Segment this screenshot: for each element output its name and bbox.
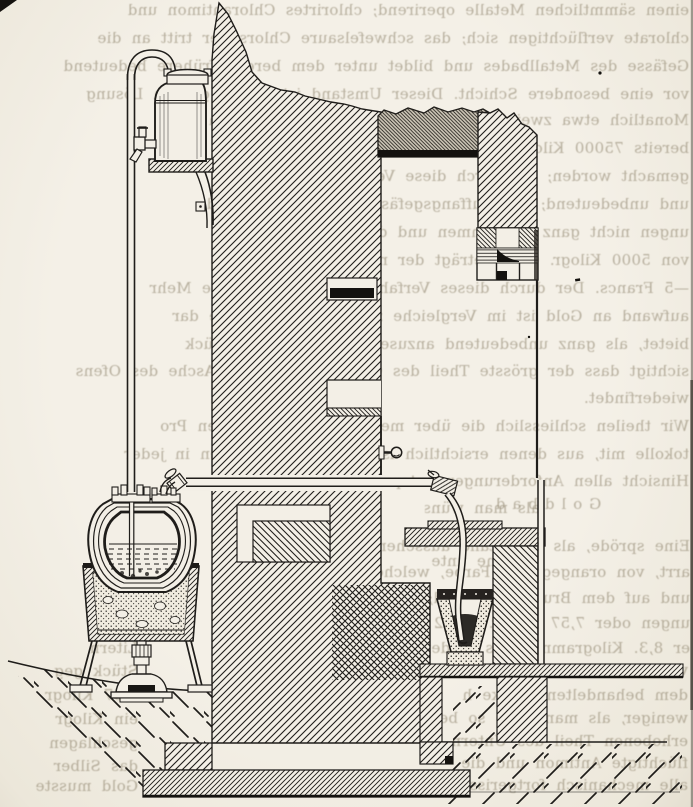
cup-pedestal [447, 652, 483, 665]
tower-right-jamb [478, 109, 537, 228]
lintel-block [378, 107, 490, 157]
chamber-cover-slab [405, 528, 545, 546]
chamber-right-wall [493, 546, 538, 664]
bottle-lid [164, 69, 211, 84]
checkered-flue-block [477, 228, 538, 280]
scanned-book-page: einen sämmtlichen Metalle operirend; chl… [0, 0, 693, 807]
furnace-tower [212, 3, 538, 743]
condenser-cup [437, 589, 493, 665]
retort-crucible [88, 478, 196, 592]
firebox-mass [332, 585, 430, 680]
wall-shelf-bracket [149, 159, 213, 228]
flue-niche [327, 278, 377, 300]
base-ledge-slab [420, 664, 683, 677]
supply-bottle [130, 69, 211, 162]
paper-specks [528, 71, 602, 338]
chamber-post [538, 480, 544, 677]
fire-door-knob [379, 446, 402, 459]
left-pier [420, 677, 442, 742]
ash-channel-block [253, 521, 330, 562]
right-pier [497, 677, 547, 742]
figure-engraving [0, 0, 693, 807]
delivery-connector [427, 470, 457, 496]
flue-notch [327, 380, 381, 416]
